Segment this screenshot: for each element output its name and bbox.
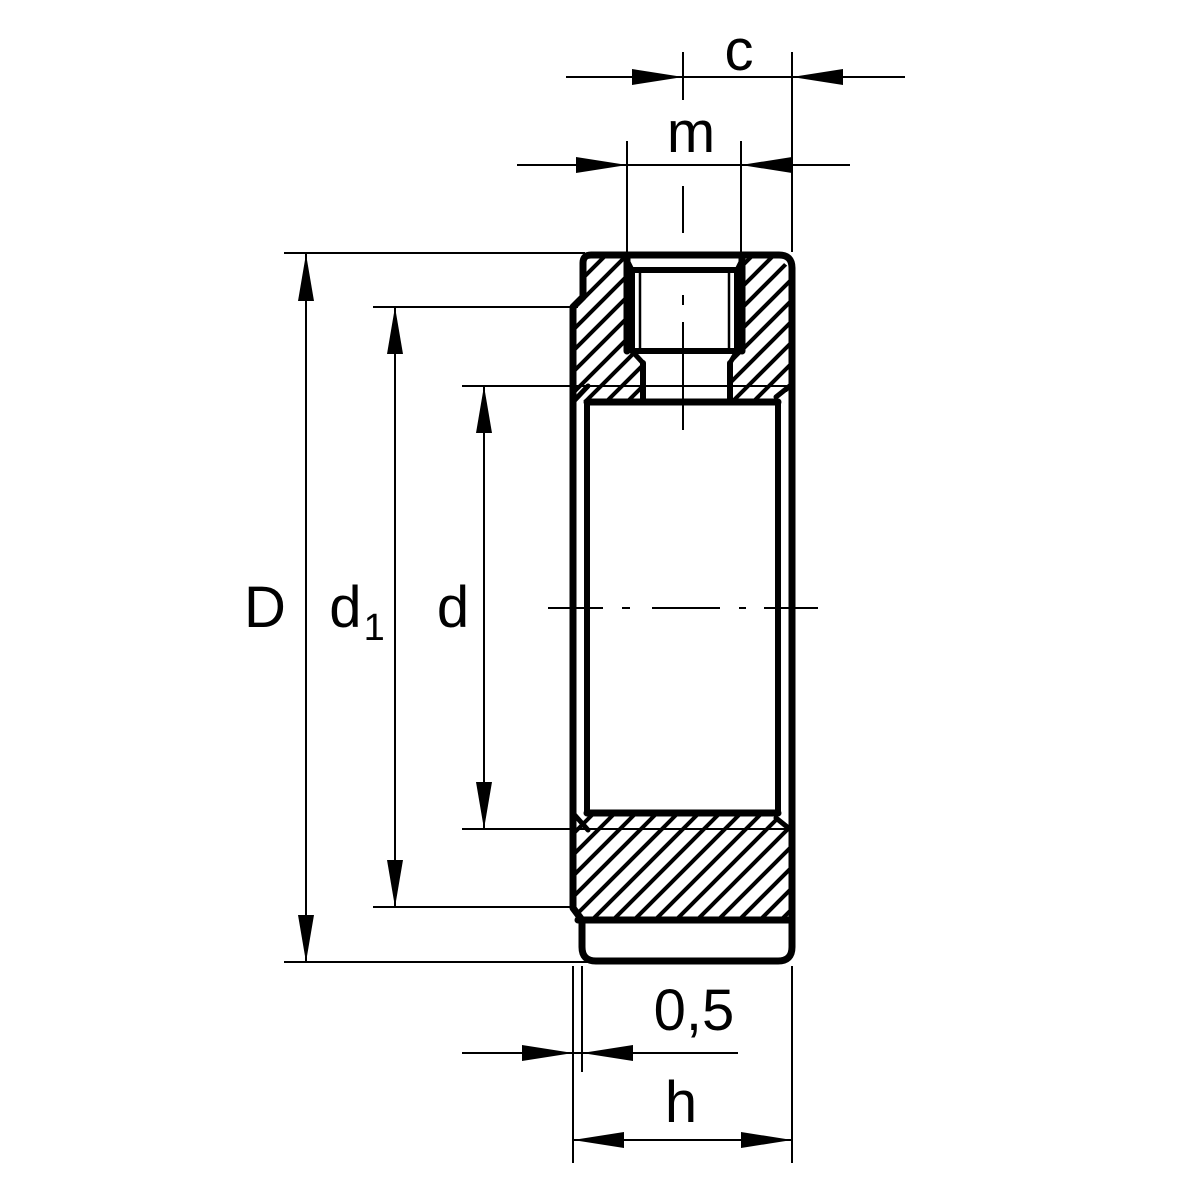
arrow-h-left bbox=[573, 1132, 624, 1148]
arrow-d-down bbox=[476, 782, 492, 829]
dim-label-h: h bbox=[665, 1074, 697, 1132]
arrow-offset-right bbox=[582, 1045, 633, 1061]
dim-label-c: c bbox=[725, 22, 754, 80]
locknut-section-figure bbox=[0, 0, 1200, 1200]
dim-offset-extensions bbox=[573, 966, 582, 1163]
dim-label-d1-base: d bbox=[329, 575, 361, 640]
dim-d1-extensions bbox=[373, 307, 578, 907]
pin-pocket bbox=[627, 255, 742, 399]
arrow-c-left bbox=[632, 69, 683, 85]
dim-label-d1: d1 bbox=[329, 579, 382, 637]
dim-label-d: d bbox=[437, 579, 469, 637]
arrow-d-up bbox=[476, 386, 492, 433]
arrow-c-right bbox=[792, 69, 843, 85]
arrow-D-down bbox=[298, 915, 314, 962]
hatch-bottom-band bbox=[574, 815, 790, 918]
arrow-m-right bbox=[741, 157, 792, 173]
dim-label-D: D bbox=[244, 579, 286, 637]
arrow-d1-up bbox=[387, 307, 403, 354]
dim-label-offset: 0,5 bbox=[654, 982, 735, 1040]
dim-label-m: m bbox=[667, 104, 715, 162]
arrow-D-up bbox=[298, 254, 314, 301]
pin-body bbox=[632, 270, 737, 351]
arrow-offset-left bbox=[522, 1045, 573, 1061]
dim-label-d1-subscript: 1 bbox=[364, 607, 385, 649]
arrow-d1-down bbox=[387, 860, 403, 907]
arrow-h-right bbox=[741, 1132, 792, 1148]
technical-drawing: c m D d1 d 0,5 h bbox=[0, 0, 1200, 1200]
pocket-channel-walls bbox=[643, 363, 730, 399]
arrow-m-left bbox=[576, 157, 627, 173]
pin-thread-lines bbox=[640, 272, 729, 349]
